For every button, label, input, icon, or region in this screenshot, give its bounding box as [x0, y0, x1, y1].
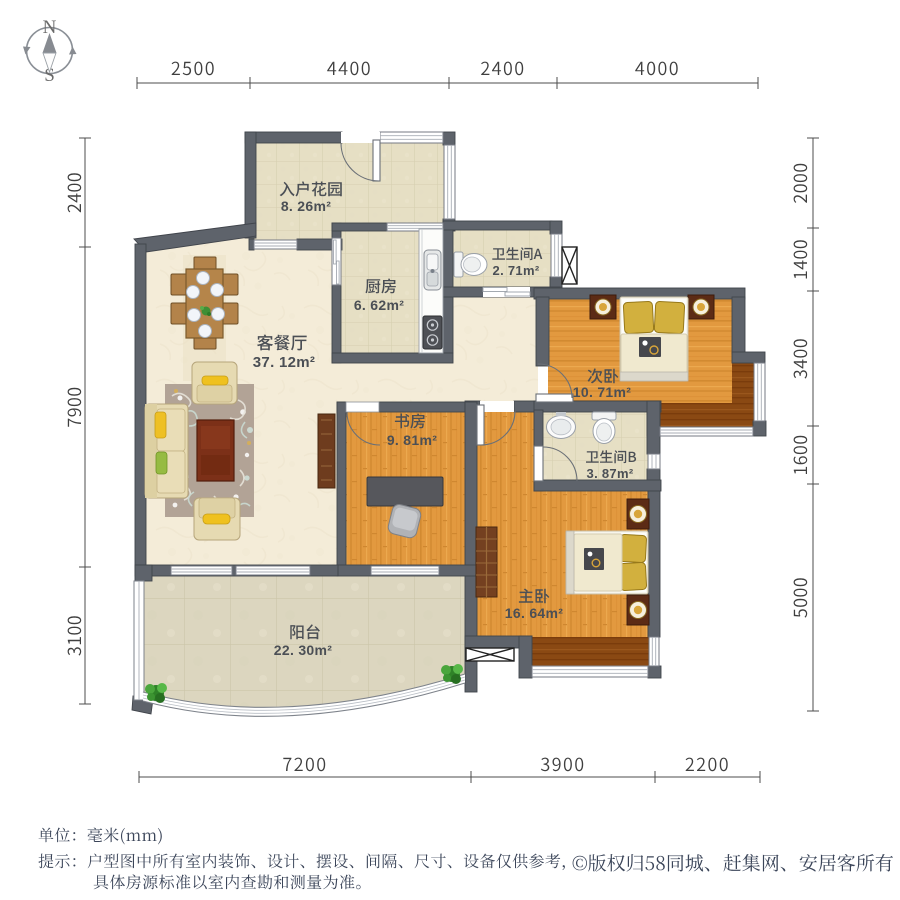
- svg-text:16. 64m²: 16. 64m²: [505, 605, 563, 621]
- svg-text:10. 71m²: 10. 71m²: [573, 384, 631, 400]
- svg-text:9. 81m²: 9. 81m²: [387, 432, 437, 448]
- svg-text:22. 30m²: 22. 30m²: [274, 642, 332, 658]
- svg-text:37. 12m²: 37. 12m²: [253, 354, 315, 371]
- svg-text:8. 26m²: 8. 26m²: [281, 198, 331, 214]
- svg-text:3. 87m²: 3. 87m²: [587, 466, 634, 481]
- svg-text:6. 62m²: 6. 62m²: [354, 297, 404, 313]
- svg-text:2. 71m²: 2. 71m²: [493, 263, 540, 278]
